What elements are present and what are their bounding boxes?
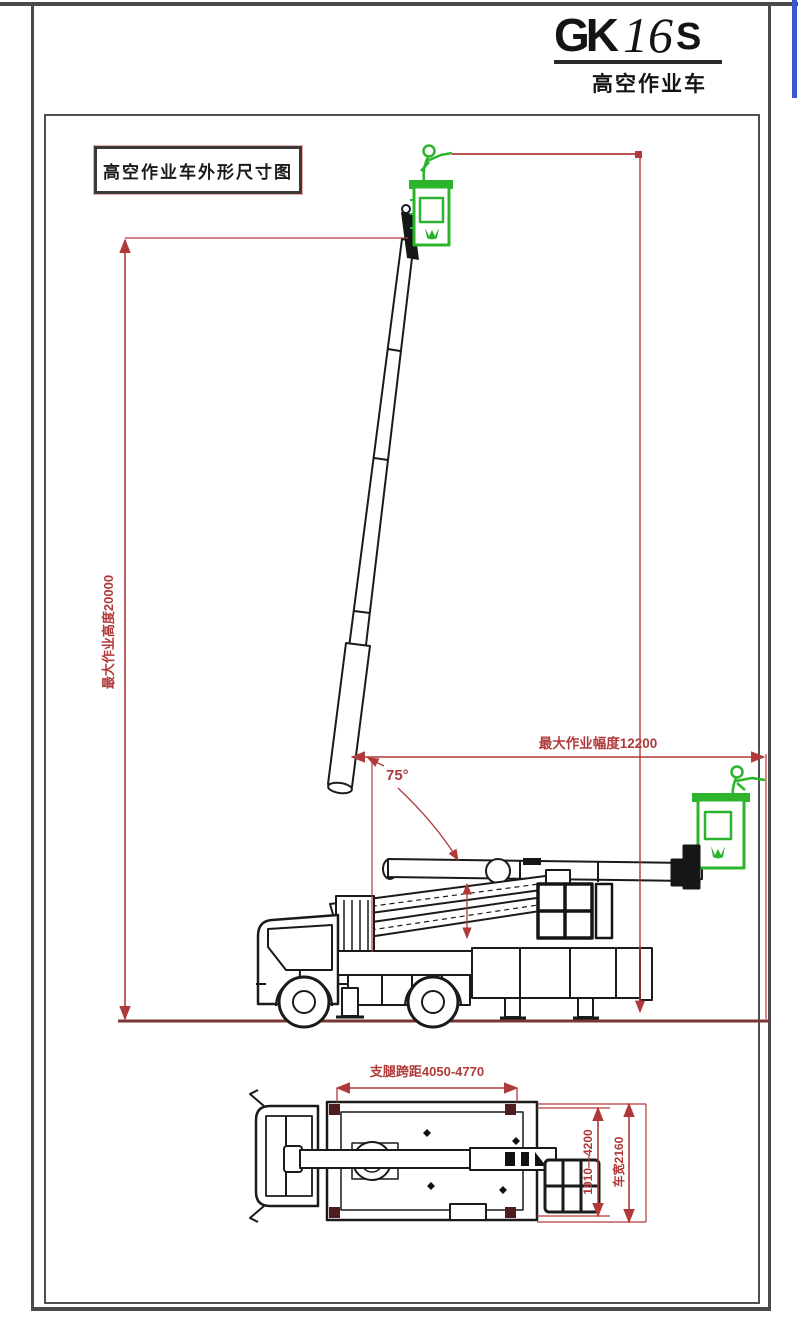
right-basket <box>692 793 750 868</box>
plan-view <box>250 1090 599 1222</box>
dim-outrigger-span-label: 支腿跨距4050-4770 <box>369 1064 484 1079</box>
dimension-drawing: 最大作业高度20000 最大作业幅度12200 75° 支腿跨距4050-477… <box>0 0 800 1324</box>
plan-boom <box>284 1146 556 1172</box>
dimension-lines: 最大作业高度20000 最大作业幅度12200 75° 支腿跨距4050-477… <box>101 151 766 1222</box>
side-view <box>118 205 770 1027</box>
dim-vehicle-width-label: 车宽2160 <box>611 1136 626 1187</box>
rear-platform-rack <box>538 884 612 938</box>
angle-arc <box>398 788 458 860</box>
extended-boom <box>327 205 419 795</box>
work-baskets <box>409 146 765 889</box>
dim-max-radius-label: 最大作业幅度12200 <box>539 735 658 751</box>
operator-figure-top <box>420 146 452 183</box>
dim-max-height-label: 最大作业高度20000 <box>101 575 116 689</box>
boom-end-bracket <box>672 846 699 888</box>
boom-angle-label: 75° <box>386 767 409 784</box>
dim-outrigger-width-label: 1910—4200 <box>581 1129 595 1195</box>
top-basket <box>409 180 453 245</box>
